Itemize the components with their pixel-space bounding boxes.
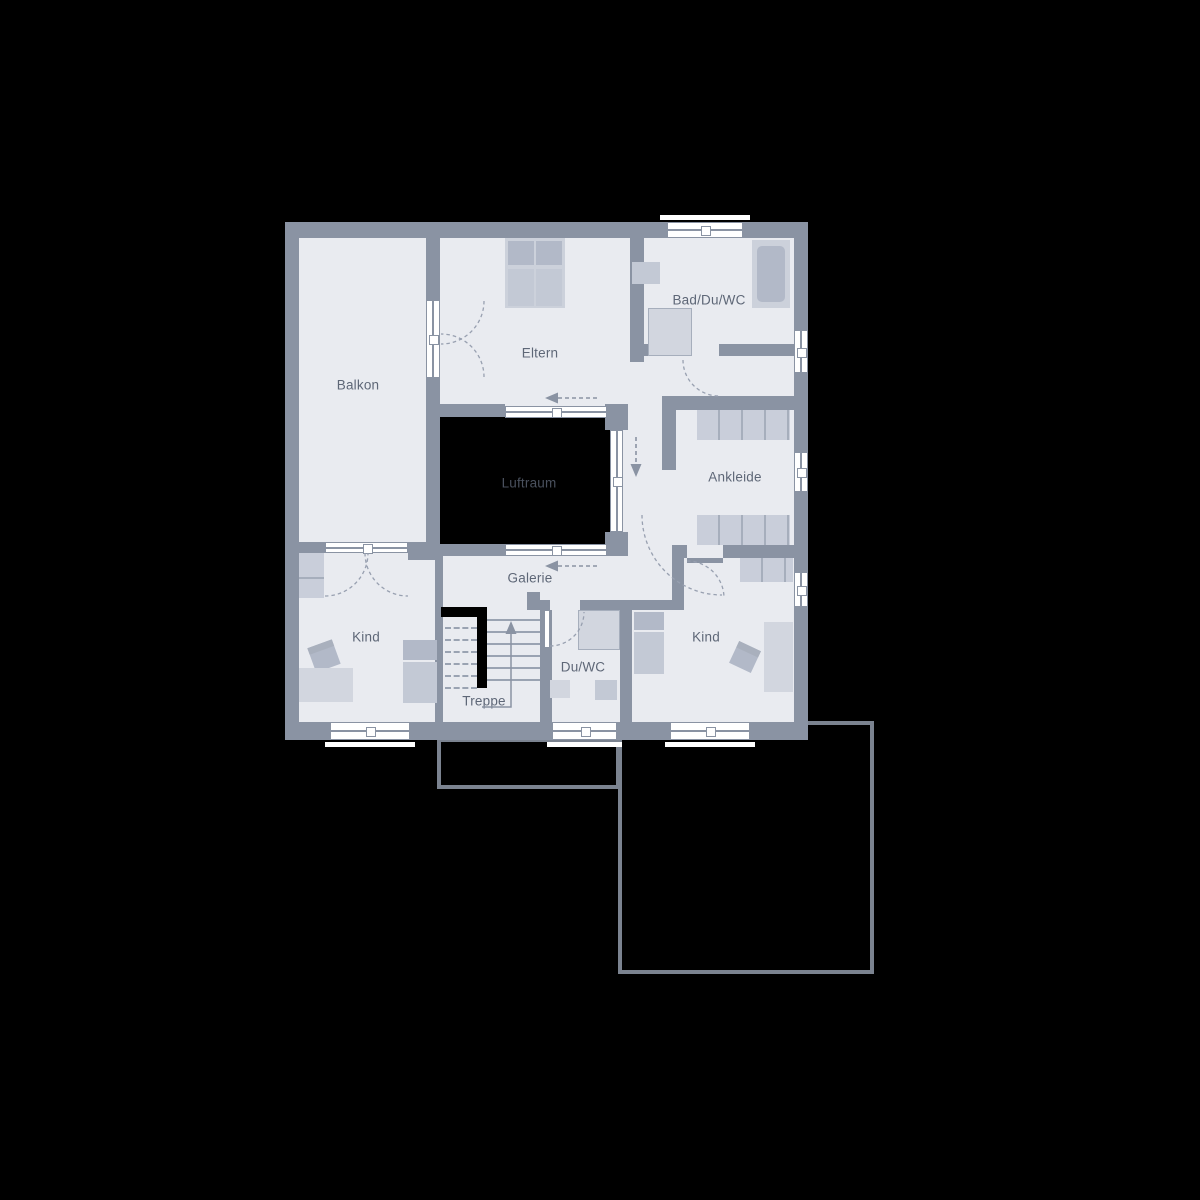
stairs-up-arrow-line (482, 633, 511, 707)
door-swing-arc-balkon-eltern-top (441, 301, 484, 344)
door-swing-arc-kind-right (687, 561, 724, 598)
stairs-up-arrow-head-icon (506, 621, 517, 634)
door-swing-arc-bad (683, 360, 719, 396)
door-swing-arc-balkon-kind-right (365, 553, 408, 596)
door-swing-arc-duwc (550, 612, 584, 646)
floor-plan-canvas: Balkon Eltern Bad/Du/WC Luftraum Ankleid… (0, 0, 1200, 1200)
annotation-overlay (0, 0, 1200, 1200)
door-swing-arc-balkon-kind-left (325, 553, 368, 596)
door-swing-arc-balkon-eltern-bottom (441, 334, 484, 377)
direction-arrow-galerie-head-icon (545, 561, 558, 572)
direction-arrow-eltern-head-icon (545, 393, 558, 404)
door-swing-arc-ankleide (642, 515, 722, 595)
direction-arrow-corridor-head-icon (631, 464, 642, 477)
